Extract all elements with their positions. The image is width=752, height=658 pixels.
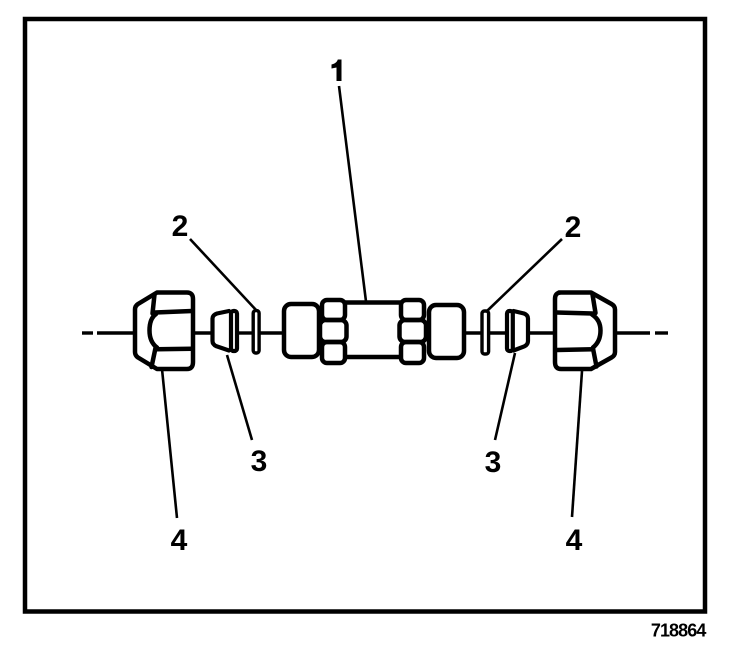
svg-text:718864: 718864: [651, 620, 707, 640]
svg-text:4: 4: [566, 524, 583, 557]
svg-text:4: 4: [171, 524, 188, 557]
svg-text:2: 2: [172, 210, 189, 243]
svg-text:3: 3: [251, 445, 268, 478]
svg-text:3: 3: [485, 446, 502, 479]
svg-text:2: 2: [565, 211, 582, 244]
